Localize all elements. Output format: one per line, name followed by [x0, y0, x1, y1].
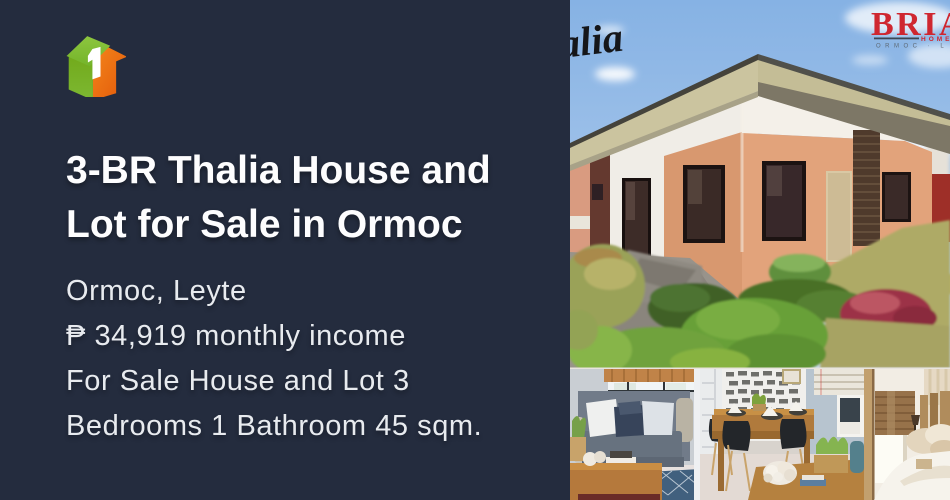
svg-text:ORMOC · L: ORMOC · L [876, 44, 948, 50]
svg-text:HOMES: HOMES [921, 36, 950, 43]
svg-text:alia: alia [570, 14, 625, 67]
